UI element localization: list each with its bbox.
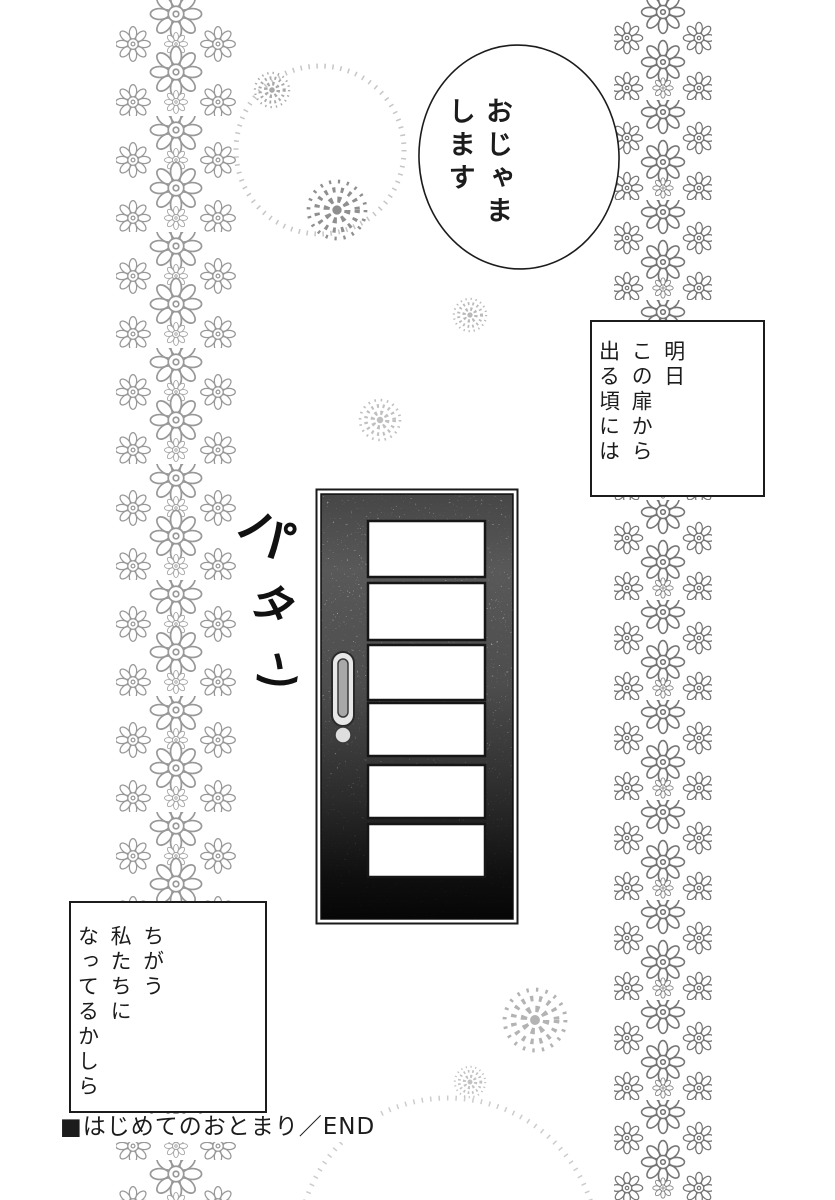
speech-bubble-text: おじゃま します (425, 97, 515, 267)
door-panel (368, 824, 485, 877)
door-panel (368, 765, 485, 818)
flower-burst (309, 182, 366, 239)
flower-burst (455, 1067, 485, 1097)
door-panel (368, 583, 485, 640)
speech-bubble: おじゃま します (415, 42, 625, 274)
narration-text: 明日 この扉から 出る頃には (592, 322, 714, 465)
narration-line: ちがう (136, 925, 169, 1100)
flower-burst (454, 299, 486, 331)
bubble-line: おじゃま (478, 97, 515, 267)
narration-text: ちがう 私たちに なってるかしら (71, 903, 197, 1100)
narration-line: 私たちに (104, 925, 137, 1100)
flower-burst (360, 400, 400, 440)
door-illustration (315, 488, 519, 925)
narration-line: なってるかしら (71, 925, 104, 1100)
bubble-line: します (441, 97, 478, 267)
narration-box-top-right: 明日 この扉から 出る頃には (590, 320, 765, 497)
door-panel (368, 703, 485, 756)
door-handle-bar (338, 659, 348, 717)
narration-box-bottom-left: ちがう 私たちに なってるかしら (69, 901, 267, 1113)
narration-line: この扉から (625, 340, 658, 465)
door-panel (368, 645, 485, 700)
door-panel (368, 521, 485, 577)
title-end-caption: ■はじめてのおとまり／END (58, 1114, 381, 1142)
narration-line: 明日 (657, 340, 690, 465)
dotted-ring-top (236, 66, 404, 234)
flower-burst (505, 990, 566, 1051)
door-knob (335, 727, 351, 743)
lace-border-right (614, 0, 712, 1200)
narration-line: 出る頃には (592, 340, 625, 465)
manga-page: パ タ ン おじゃま します 明日 この扉から 出る頃には ちがう 私たちに な… (0, 0, 835, 1200)
